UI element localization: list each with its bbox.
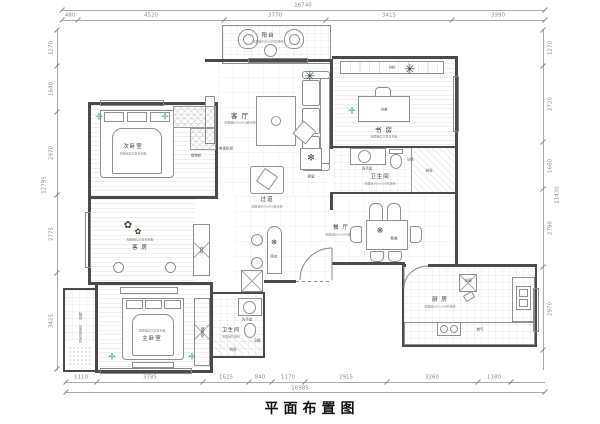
dim-total-left: 12795 [41, 176, 47, 193]
bath-bottom-note: 地面铺防滑砖 [222, 334, 240, 339]
bath-bottom-label: 卫生间 [222, 327, 240, 334]
flower-icon: ✿ [135, 228, 142, 236]
dim-label: 1110 [74, 374, 88, 380]
corridor-note: 地面铺800x800玻化砖 [251, 204, 282, 209]
basin [358, 150, 371, 163]
reserved-label: 预留 [307, 173, 314, 178]
dining-table-label: 餐桌 [390, 235, 397, 240]
bed-pillow [126, 300, 143, 309]
floor-plan-canvas: 阳台 地面铺300x300防滑砖 电视机柜 ✻ 预留 ✳ 客 厅 地面铺800x… [0, 0, 600, 424]
toilet-label: 马桶 [406, 156, 413, 161]
storage-label: 储物柜 [199, 327, 204, 338]
balcony-left-note: 地面铺防滑砖 [78, 325, 83, 343]
shower-label: 淋浴 [229, 346, 236, 351]
dim-label: 2970 [547, 302, 553, 316]
balcony-chair [289, 34, 300, 45]
bar-label: 吧台 [270, 253, 277, 258]
burner [440, 325, 448, 333]
door-arcs [0, 0, 600, 424]
dining-chair [350, 226, 362, 243]
toilet-label: 马桶 [253, 337, 260, 342]
stool [113, 262, 124, 273]
ceiling-symbol: ✛ [161, 114, 169, 123]
plant-icon: ✳ [305, 71, 316, 84]
dim-line [543, 30, 544, 370]
basin-label: 洗手盆 [362, 165, 373, 170]
storage-cabinet [173, 106, 216, 128]
dim-line [57, 30, 58, 370]
dim-label: 840 [255, 374, 265, 380]
guest-label: 客 房 [132, 243, 148, 251]
fridge-label: 冰箱 [464, 277, 471, 282]
table-decor-icon: ❋ [377, 227, 384, 235]
bar-counter [267, 226, 282, 274]
dim-label: 1170 [281, 374, 295, 380]
dim-line [66, 392, 545, 393]
sink-bowl [519, 289, 528, 297]
bar-stool [251, 257, 263, 269]
dining-chair [410, 226, 422, 243]
dim-label: 2720 [547, 97, 553, 111]
dining-label: 餐 厅 [333, 223, 349, 231]
study-note: 地面铺实木复合地板 [370, 134, 397, 139]
dim-label: 480 [65, 12, 75, 18]
stool [165, 262, 176, 273]
living-note: 地面铺800x800玻化砖 [224, 120, 255, 125]
dim-line [62, 20, 545, 21]
living-label: 客 厅 [231, 110, 249, 120]
dim-label: 1640 [48, 82, 54, 96]
dim-line [62, 10, 545, 11]
dining-table [366, 220, 408, 250]
dim-label: 2790 [547, 221, 553, 235]
sink-bowl [519, 299, 528, 307]
coffee-table-decor [271, 116, 281, 126]
plant-icon: ✻ [307, 155, 315, 164]
dresser [120, 287, 178, 294]
dining-chair [370, 251, 384, 262]
guest-note: 地面铺实木复合地板 [126, 237, 153, 242]
dim-label: 3415 [382, 12, 396, 18]
balcony-top-note: 地面铺300x300防滑砖 [252, 39, 283, 44]
bar-decor-icon: ❋ [271, 240, 277, 247]
dim-label: 3770 [268, 12, 282, 18]
bed-pillow [104, 112, 124, 122]
ceiling-symbol: ✛ [348, 108, 356, 117]
balcony-table [264, 44, 277, 57]
burner [450, 325, 458, 333]
bed-pillow [127, 112, 147, 122]
toilet-bowl [390, 154, 402, 169]
drawing-title: 平面布置图 [265, 398, 360, 418]
kitchen-counter [404, 322, 535, 345]
gas-label: 燃气 [476, 326, 483, 331]
balcony-left-label: 阳台 [77, 312, 82, 319]
flower-icon: ✿ [124, 221, 132, 231]
dining-chair [388, 251, 402, 262]
master-label: 主卧室 [142, 334, 162, 342]
shoe-cabinet [241, 270, 263, 292]
bath-right-label: 卫生间 [370, 172, 390, 180]
kitchen-note: 地面铺300x300防滑砖 [424, 304, 455, 309]
wardrobe-label: 衣柜 [198, 246, 203, 253]
dim-total-bottom: 16985 [291, 385, 308, 391]
dim-label: 1270 [547, 41, 553, 55]
bedroom2-note: 地面铺实木复合地板 [119, 151, 146, 156]
bedroom2-label: 次卧室 [123, 142, 143, 150]
bath-divider [411, 148, 412, 192]
bookcase-label: 书柜 [388, 64, 395, 69]
corridor-label: 过道 [260, 195, 273, 203]
dim-label: 3785 [143, 374, 157, 380]
dim-label: 2915 [339, 374, 353, 380]
dim-label: 1625 [219, 374, 233, 380]
master-note: 地面铺实木复合地板 [138, 328, 165, 333]
toilet-bowl [244, 323, 256, 338]
dim-label: 3260 [425, 374, 439, 380]
ceiling-symbol: ✛ [95, 114, 103, 123]
basin [243, 301, 256, 314]
bed-pillow [164, 300, 181, 309]
desk-label: 书桌 [380, 106, 387, 111]
bed-pillow [145, 300, 162, 309]
bath-right-note: 地面铺300x300防滑砖 [364, 181, 395, 186]
dim-label: 3990 [491, 12, 505, 18]
dim-total-top: 16740 [294, 2, 311, 8]
tv-cabinet-label: 电视机柜 [219, 145, 233, 150]
storage-label: 储物柜 [191, 152, 202, 157]
basin-label: 洗手盆 [242, 316, 253, 321]
dim-label: 1270 [48, 41, 54, 55]
dim-label: 2970 [48, 146, 54, 160]
bed-bench [132, 362, 174, 368]
dim-total-right: 11430 [554, 186, 560, 203]
plant-icon: ✳ [405, 64, 416, 77]
storage-cabinet [190, 128, 216, 150]
dim-label: 3425 [48, 314, 54, 328]
shower-label: 淋浴 [425, 167, 432, 172]
ceiling-symbol: ✛ [108, 354, 116, 363]
bar-stool [251, 234, 263, 246]
dim-label: 4520 [144, 12, 158, 18]
study-label: 书 房 [375, 124, 393, 134]
dim-label: 2775 [48, 227, 54, 241]
dim-label: 1680 [547, 159, 553, 173]
dim-label: 1180 [487, 374, 501, 380]
kitchen-label: 厨 房 [432, 295, 448, 303]
